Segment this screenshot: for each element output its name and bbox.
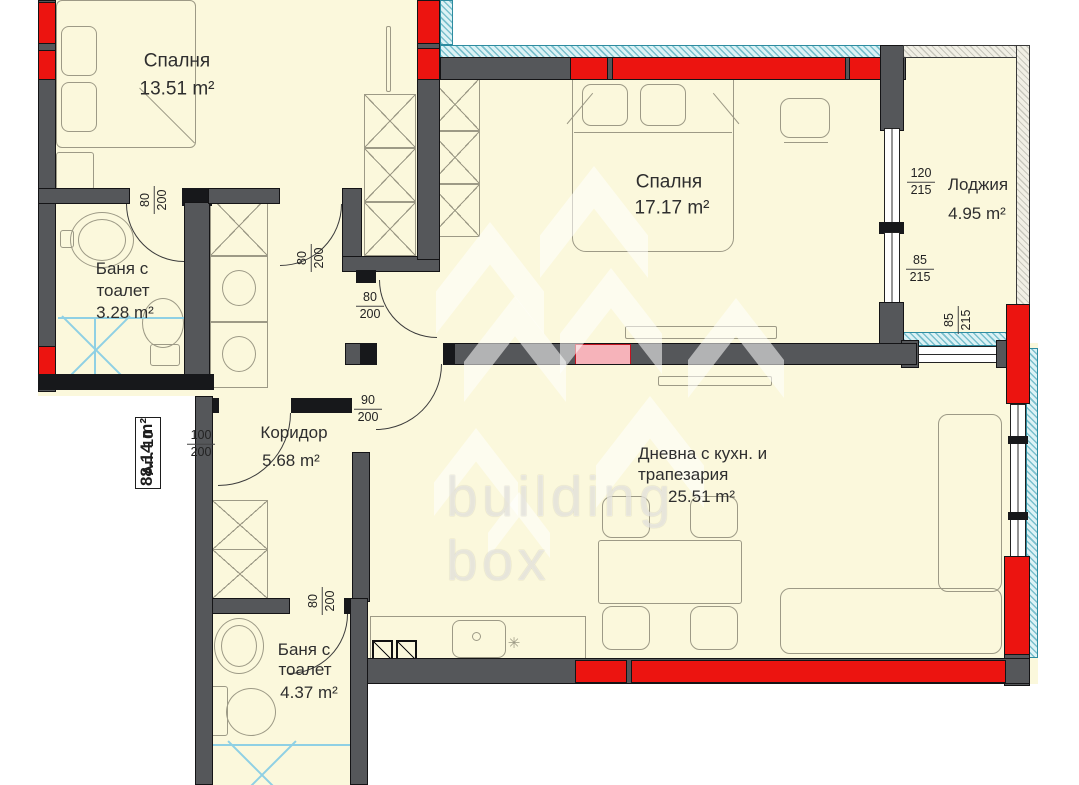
wardrobe-icon [364, 202, 416, 256]
wall-segment [880, 45, 904, 131]
column-red [849, 57, 883, 80]
room-label-bedroom1-name: Спалня [144, 51, 210, 74]
chair-icon [690, 606, 738, 650]
door-opening [377, 343, 443, 365]
faucet-icon [60, 230, 74, 248]
highlighted-wall-segment [575, 344, 631, 364]
sofa-icon [780, 588, 1002, 654]
wall-segment [184, 202, 210, 390]
wall-segment [208, 188, 280, 204]
closet-icon [212, 549, 268, 599]
column-red [631, 660, 1006, 683]
chair-icon [780, 98, 830, 138]
bathroom-sink-inner [78, 219, 126, 261]
room-label-corridor-name: Коридор [260, 423, 327, 443]
door-leaf-icon [386, 26, 391, 92]
door-jamb [360, 343, 377, 365]
window [1010, 404, 1026, 558]
room-label-bedroom2-name: Спалня [636, 172, 702, 195]
room-label-living-area: 25.51 m² [668, 487, 735, 507]
room-label-bath2-name2: тоалет [278, 660, 331, 680]
radiator-icon [658, 376, 772, 386]
door-jamb [443, 343, 455, 365]
nightstand-icon [56, 152, 94, 190]
room-label-loggia-area: 4.95 m² [948, 204, 1006, 224]
watermark-text-line2: box [446, 528, 550, 594]
room-label-corridor-area: 5.68 m² [262, 451, 320, 471]
loggia-parapet [903, 45, 1030, 58]
window [884, 128, 900, 224]
room-label-bath1-area: 3.28 m² [96, 303, 154, 323]
closet-icon [210, 196, 268, 256]
blanket-line [574, 132, 732, 133]
room-label-bath1-name1: Баня с [96, 259, 148, 279]
dining-table-icon [598, 540, 742, 604]
bathroom-sink-inner [221, 625, 257, 667]
apartment-area-label: 88.14 m² [135, 407, 159, 497]
chair-back-line [784, 142, 828, 143]
washer-drum-icon [222, 336, 256, 372]
room-label-loggia-name: Лоджия [948, 175, 1008, 195]
column-red [38, 50, 56, 80]
window-mullion [1008, 436, 1028, 444]
dim-entry-door: 100200 [187, 429, 215, 460]
column-red [1006, 304, 1030, 404]
room-label-bath2-name1: Баня с [278, 640, 330, 660]
wall-segment [212, 598, 290, 614]
dim-bath1-door: 80200 [139, 186, 170, 214]
dim-bedroom2-door: 80200 [356, 291, 384, 322]
wall-segment [38, 374, 214, 390]
wall-segment [350, 598, 368, 785]
room-label-living-name2: трапезария [638, 465, 728, 485]
room-label-bedroom1-area: 13.51 m² [140, 79, 215, 102]
pillow-icon [61, 82, 97, 132]
dim-loggia-window: 120215 [907, 167, 935, 198]
room-label-bath2-area: 4.37 m² [280, 683, 338, 703]
wardrobe-icon [364, 148, 416, 202]
column-red [417, 48, 440, 80]
balcony-door [884, 232, 900, 304]
dim-bath2-door: 80200 [307, 587, 338, 615]
toilet-cistern-icon [150, 344, 180, 366]
wall-segment [38, 188, 130, 204]
column-red [612, 57, 846, 80]
washer-drum-icon [222, 270, 256, 306]
window-mullion [1008, 512, 1028, 520]
dim-bedroom1-door: 80200 [296, 244, 327, 272]
sink-drain-icon [472, 632, 481, 641]
window [918, 346, 998, 363]
wall-segment [352, 452, 370, 602]
wall-segment [291, 398, 352, 413]
pillow-icon [582, 84, 628, 126]
floor-plan: ✳ [0, 0, 1079, 785]
sofa-icon [938, 414, 1002, 592]
chair-icon [602, 606, 650, 650]
room-label-living-name1: Дневна с кухн. и [638, 444, 767, 464]
column-red [570, 57, 608, 80]
room-label-bedroom2-area: 17.17 m² [635, 198, 710, 221]
column-red [38, 2, 56, 44]
pillow-icon [61, 26, 97, 76]
dim-loggia-door: 85215 [906, 254, 934, 285]
apartment-area: 88.14 m² [137, 418, 157, 486]
stove-icon: ✳ [508, 635, 521, 653]
dim-living-door: 90200 [354, 394, 382, 425]
column-red [417, 0, 440, 44]
pillow-icon [640, 84, 686, 126]
toilet-icon [226, 688, 276, 736]
door-jamb [356, 270, 376, 283]
column-red [575, 660, 627, 683]
wardrobe-icon [364, 94, 416, 148]
column-red [1004, 556, 1030, 658]
closet-icon [212, 500, 268, 550]
insulation-strip [440, 0, 453, 45]
dim-loggia-bottom-window: 85215 [943, 306, 974, 334]
room-label-bath1-name2: тоалет [96, 281, 149, 301]
